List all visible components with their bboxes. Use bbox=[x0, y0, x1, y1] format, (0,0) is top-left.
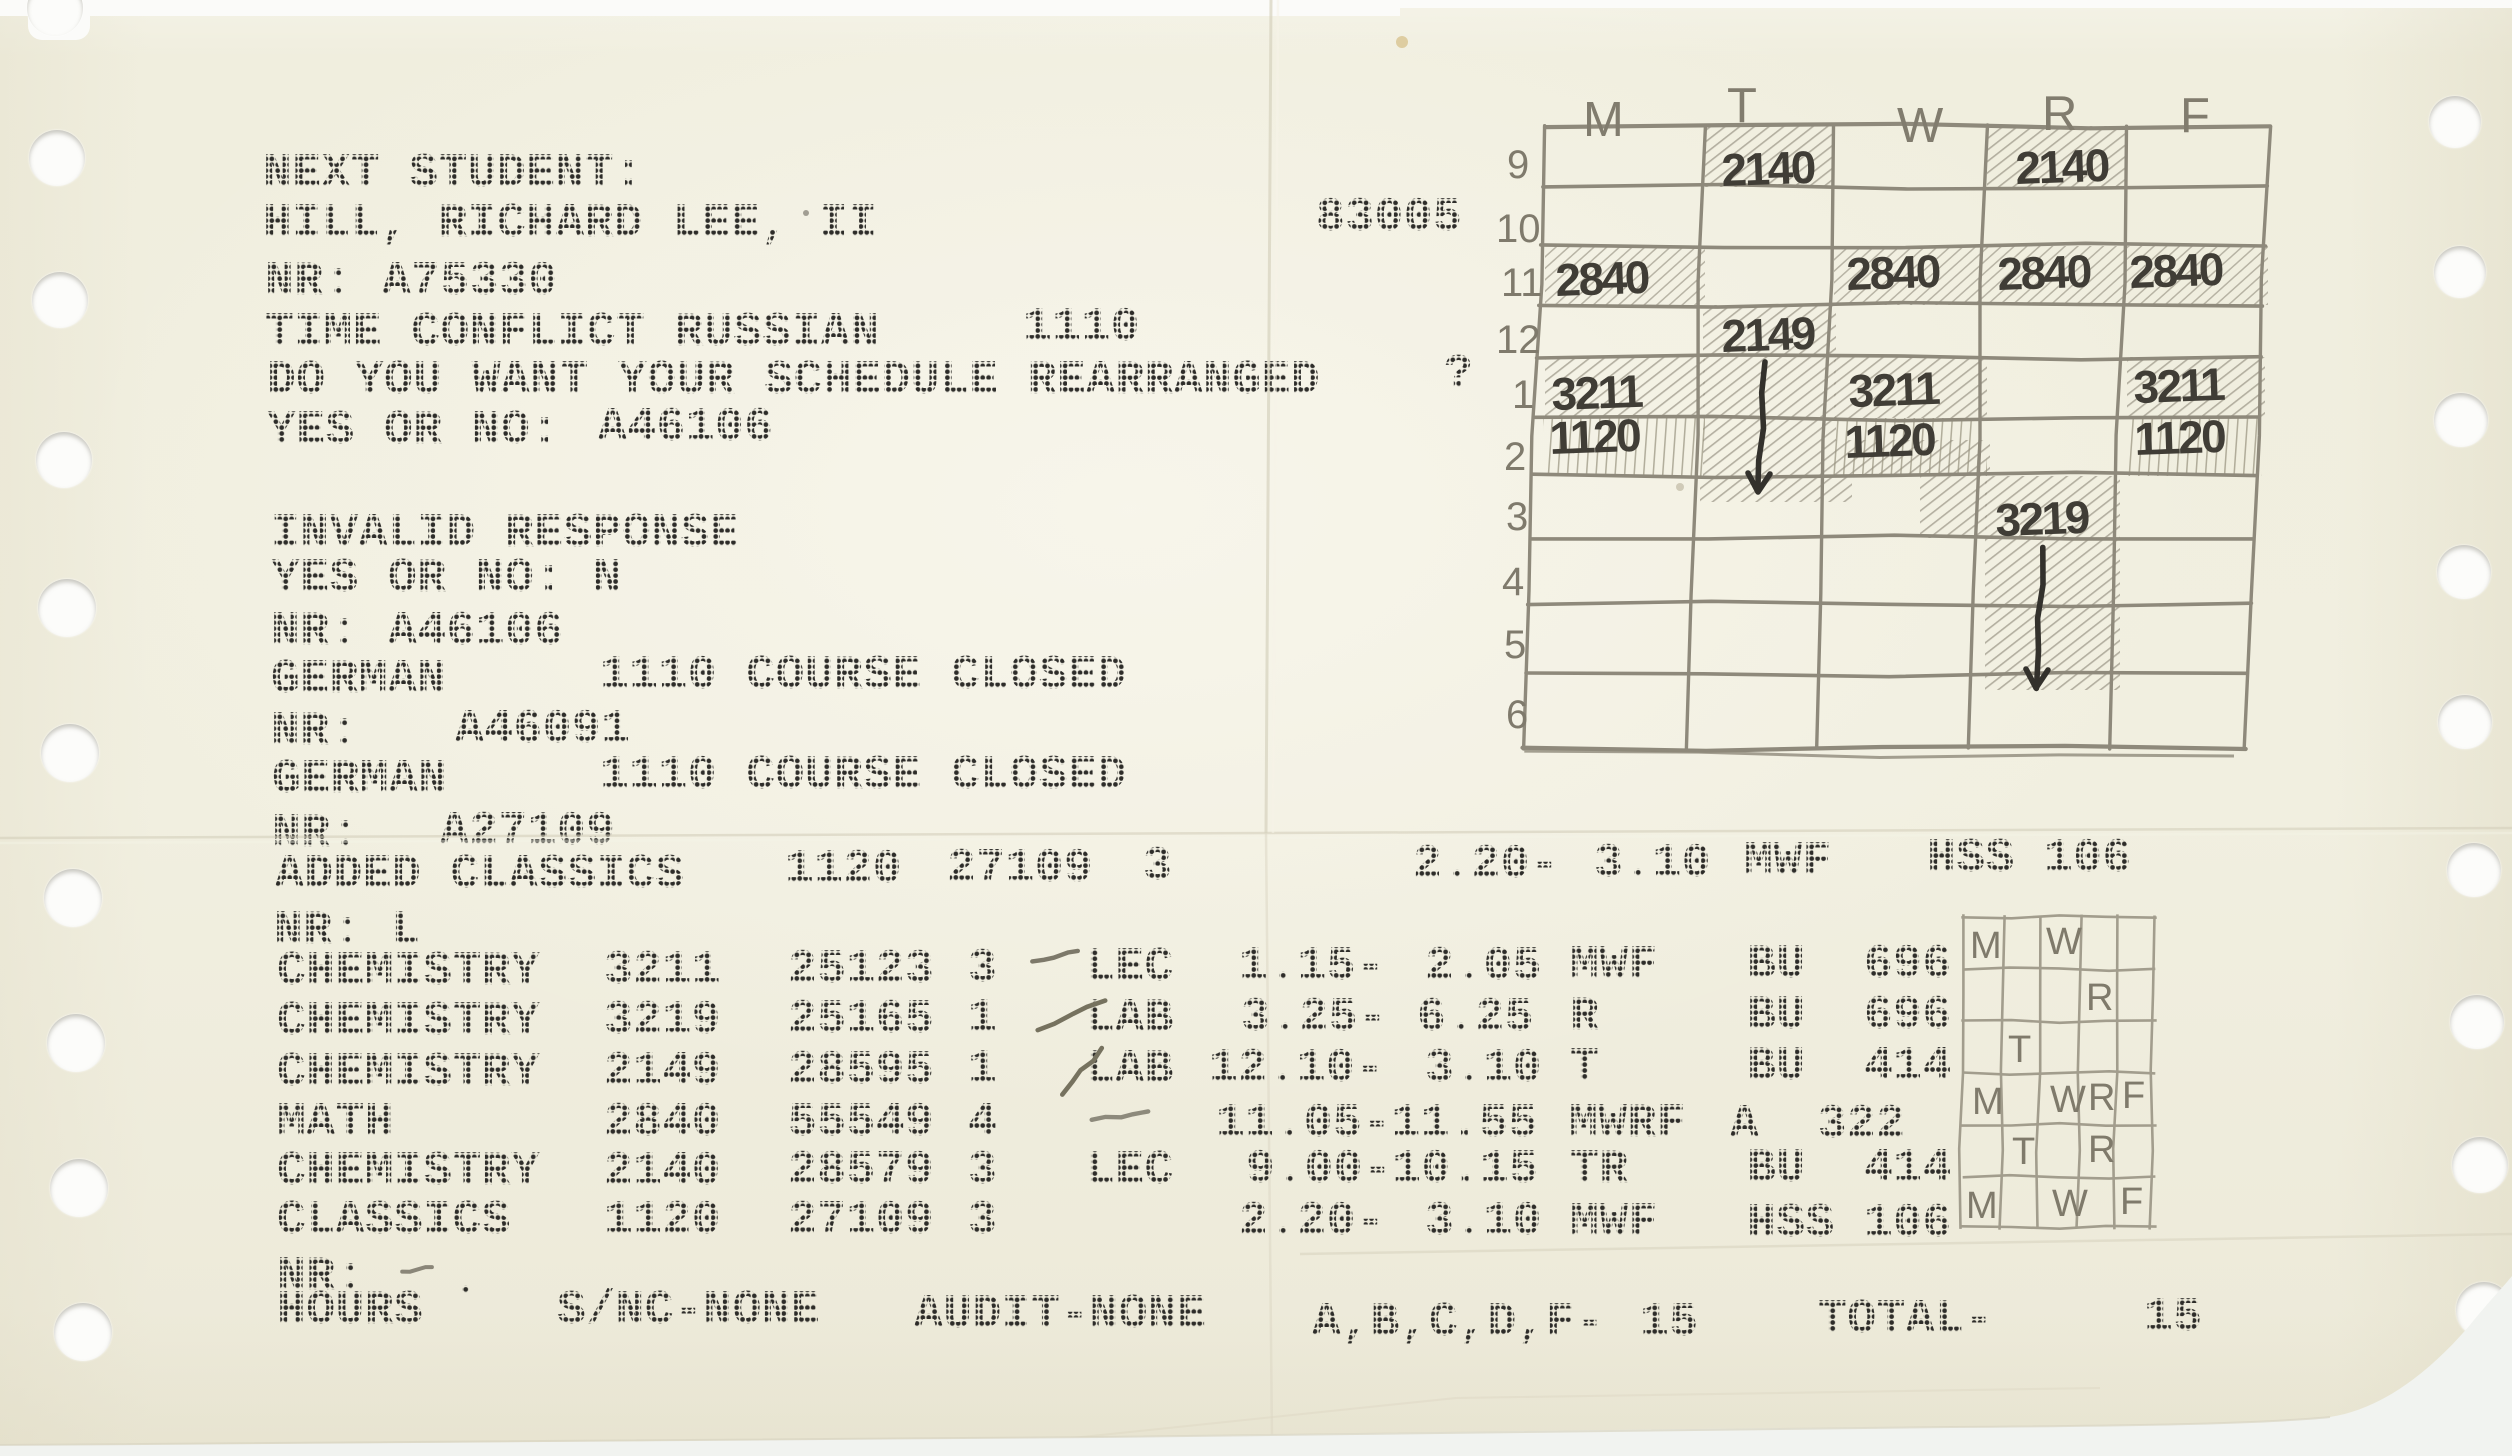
svg-text:W: W bbox=[2050, 1079, 2086, 1121]
svg-text:F: F bbox=[2122, 1075, 2145, 1117]
svg-text:R: R bbox=[2042, 87, 2077, 141]
svg-text:1: 1 bbox=[1512, 373, 1534, 417]
svg-text:T: T bbox=[2008, 1029, 2031, 1071]
svg-text:2840: 2840 bbox=[2129, 243, 2224, 298]
svg-text:W: W bbox=[2052, 1183, 2088, 1225]
svg-text:R: R bbox=[2088, 1077, 2115, 1119]
svg-text:2: 2 bbox=[1504, 435, 1526, 479]
svg-text:3211: 3211 bbox=[1848, 362, 1941, 417]
svg-text:2840: 2840 bbox=[1555, 251, 1650, 306]
svg-text:11: 11 bbox=[1501, 261, 1543, 305]
svg-text:2149: 2149 bbox=[1721, 307, 1816, 362]
svg-text:1120: 1120 bbox=[2134, 410, 2226, 465]
svg-text:5: 5 bbox=[1504, 623, 1526, 667]
svg-text:2840: 2840 bbox=[1997, 245, 2092, 300]
svg-text:4: 4 bbox=[1502, 560, 1524, 604]
svg-text:M: M bbox=[1966, 1185, 1998, 1227]
svg-text:M: M bbox=[1972, 1081, 2004, 1123]
svg-text:1120: 1120 bbox=[1549, 409, 1641, 464]
svg-text:F: F bbox=[2180, 89, 2210, 143]
svg-text:T: T bbox=[2012, 1131, 2035, 1173]
svg-text:1120: 1120 bbox=[1844, 413, 1936, 468]
svg-text:3: 3 bbox=[1506, 495, 1528, 539]
svg-text:M: M bbox=[1583, 93, 1624, 147]
svg-text:6: 6 bbox=[1506, 693, 1528, 737]
svg-text:2840: 2840 bbox=[1846, 245, 1941, 300]
svg-text:10: 10 bbox=[1496, 207, 1541, 251]
svg-text:2140: 2140 bbox=[1721, 141, 1816, 196]
svg-text:2140: 2140 bbox=[2015, 139, 2110, 194]
svg-text:W: W bbox=[2046, 921, 2082, 963]
svg-text:R: R bbox=[2086, 977, 2113, 1019]
svg-text:9: 9 bbox=[1507, 143, 1529, 187]
svg-text:F: F bbox=[2120, 1181, 2143, 1223]
svg-text:T: T bbox=[1727, 79, 1757, 133]
svg-text:12: 12 bbox=[1496, 318, 1541, 362]
svg-text:W: W bbox=[1897, 99, 1944, 153]
svg-text:3219: 3219 bbox=[1995, 491, 2090, 546]
svg-text:3211: 3211 bbox=[2133, 358, 2226, 413]
svg-text:R: R bbox=[2088, 1129, 2115, 1171]
svg-text:M: M bbox=[1970, 925, 2002, 967]
